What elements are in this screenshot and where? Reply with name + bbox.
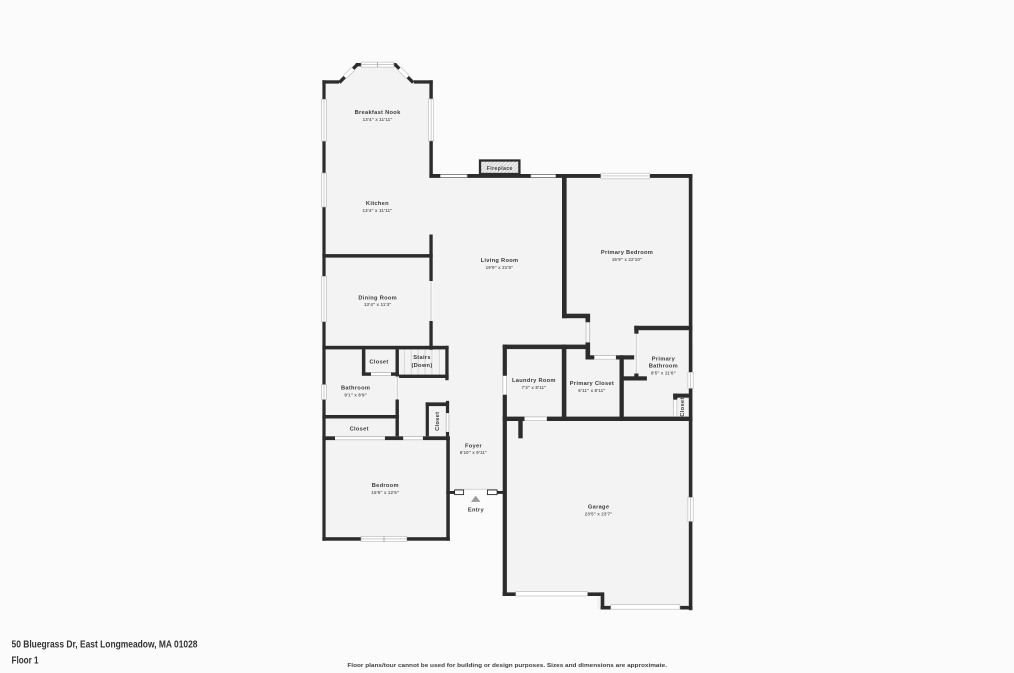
svg-text:6'11" x 8'11": 6'11" x 8'11" bbox=[578, 388, 605, 393]
svg-text:Foyer: Foyer bbox=[465, 443, 482, 449]
svg-text:7'3" x 8'11": 7'3" x 8'11" bbox=[521, 385, 546, 390]
svg-text:Bathroom: Bathroom bbox=[341, 386, 370, 392]
svg-text:19'9" x 21'5": 19'9" x 21'5" bbox=[486, 265, 514, 270]
svg-text:15'9" x 22'10": 15'9" x 22'10" bbox=[612, 257, 642, 262]
svg-text:Bathroom: Bathroom bbox=[649, 364, 678, 370]
svg-text:Kitchen: Kitchen bbox=[366, 201, 389, 207]
svg-text:Primary: Primary bbox=[652, 356, 676, 362]
svg-text:23'5" x 23'7": 23'5" x 23'7" bbox=[585, 512, 613, 517]
svg-text:9'1" x 8'9": 9'1" x 8'9" bbox=[344, 392, 367, 397]
svg-text:8'5" x 11'6": 8'5" x 11'6" bbox=[651, 371, 676, 376]
svg-text:13'4" x 11'11": 13'4" x 11'11" bbox=[363, 117, 393, 122]
svg-text:Breakfast Nook: Breakfast Nook bbox=[355, 110, 401, 116]
svg-text:Bedroom: Bedroom bbox=[372, 483, 399, 489]
svg-text:Stairs: Stairs bbox=[413, 355, 431, 361]
svg-text:13'4" x 11'11": 13'4" x 11'11" bbox=[362, 208, 392, 213]
svg-text:6'10" x 9'11": 6'10" x 9'11" bbox=[460, 450, 487, 455]
svg-text:Garage: Garage bbox=[588, 505, 609, 511]
svg-text:Closet: Closet bbox=[435, 412, 441, 431]
svg-text:Entry: Entry bbox=[468, 508, 485, 514]
svg-text:Fireplace: Fireplace bbox=[487, 166, 513, 172]
svg-text:Dining Room: Dining Room bbox=[358, 295, 397, 301]
svg-text:Floor 1: Floor 1 bbox=[12, 656, 40, 667]
svg-text:Floor plans/tour cannot be use: Floor plans/tour cannot be used for buil… bbox=[347, 663, 667, 669]
svg-text:15'5" x 12'5": 15'5" x 12'5" bbox=[371, 490, 399, 495]
svg-text:Closet: Closet bbox=[369, 359, 388, 365]
svg-text:Closet: Closet bbox=[350, 427, 369, 433]
svg-text:Primary Closet: Primary Closet bbox=[570, 381, 614, 387]
svg-text:50 Bluegrass Dr, East Longmead: 50 Bluegrass Dr, East Longmeadow, MA 010… bbox=[12, 639, 199, 650]
svg-text:Laundry Room: Laundry Room bbox=[512, 378, 556, 384]
svg-text:13'4" x 11'3": 13'4" x 11'3" bbox=[364, 302, 391, 307]
svg-text:Living Room: Living Room bbox=[481, 258, 519, 264]
svg-text:Primary Bedroom: Primary Bedroom bbox=[601, 250, 653, 256]
svg-text:(Down): (Down) bbox=[411, 363, 432, 369]
svg-text:Closet: Closet bbox=[680, 397, 686, 416]
